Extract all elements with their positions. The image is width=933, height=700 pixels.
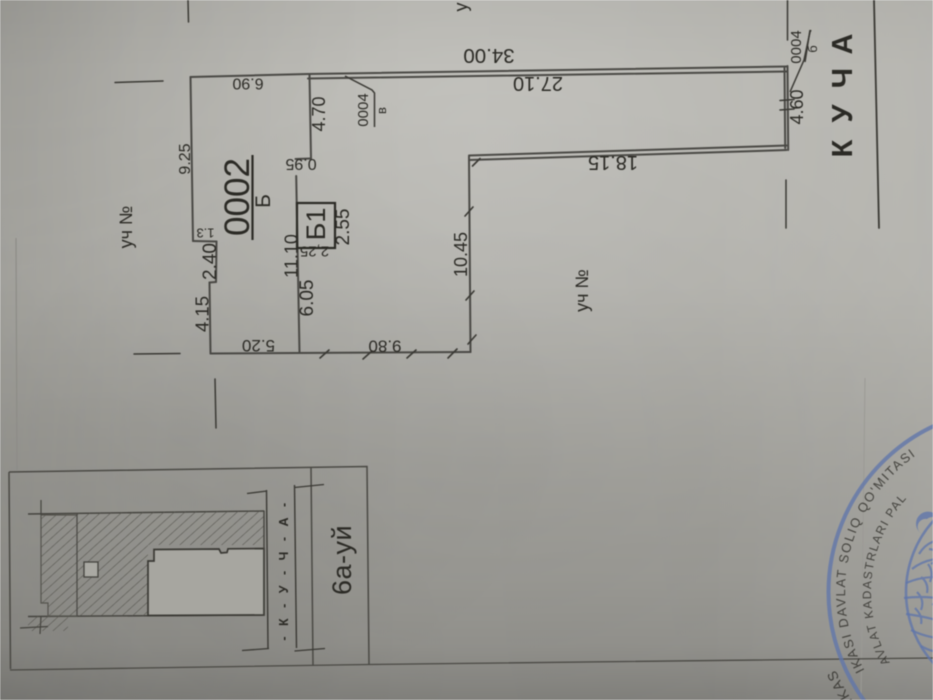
svg-text:уч №: уч №: [116, 206, 136, 249]
svg-text:0004: 0004: [355, 93, 372, 126]
svg-text:у: у: [451, 3, 471, 12]
svg-text:6а-уй: 6а-уй: [327, 525, 357, 595]
svg-text:2,25: 2,25: [300, 243, 329, 260]
svg-text:27.10: 27.10: [513, 72, 563, 94]
svg-text:4.60: 4.60: [787, 89, 807, 124]
svg-text:Б: Б: [252, 194, 275, 208]
svg-text:9.25: 9.25: [177, 143, 194, 174]
svg-text:0.95: 0.95: [285, 155, 316, 172]
svg-text:9.80: 9.80: [368, 337, 401, 356]
svg-text:1.3: 1.3: [196, 226, 214, 241]
svg-text:6.05: 6.05: [297, 280, 318, 317]
svg-text:2.55: 2.55: [333, 209, 354, 246]
svg-text:К: К: [827, 139, 859, 157]
svg-text:б: б: [805, 45, 820, 52]
svg-text:5.20: 5.20: [242, 336, 275, 355]
svg-text:А: А: [827, 33, 859, 54]
svg-text:6.90: 6.90: [232, 75, 263, 92]
svg-text:11.10: 11.10: [282, 234, 302, 278]
svg-text:Ч: Ч: [827, 68, 859, 88]
svg-text:2.40: 2.40: [200, 243, 221, 280]
svg-text:4.70: 4.70: [309, 96, 329, 131]
svg-text:4.15: 4.15: [192, 296, 213, 332]
svg-text:10.45: 10.45: [451, 232, 471, 277]
svg-text:18.15: 18.15: [588, 151, 638, 173]
svg-text:в: в: [374, 107, 389, 114]
svg-text:0004: 0004: [788, 30, 805, 63]
svg-text:Б1: Б1: [301, 208, 331, 241]
svg-text:- К - У - Ч - А -: - К - У - Ч - А -: [277, 499, 291, 640]
svg-text:34.00: 34.00: [463, 44, 514, 67]
svg-text:уч №: уч №: [572, 269, 592, 312]
svg-text:У: У: [827, 104, 859, 123]
